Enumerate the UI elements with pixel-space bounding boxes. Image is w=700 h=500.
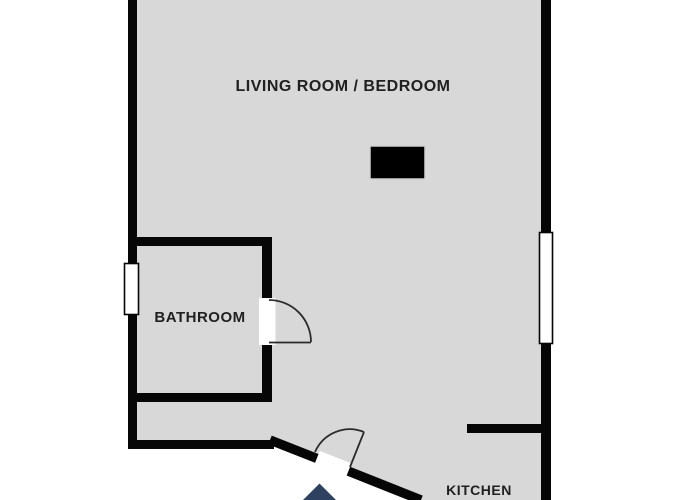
bathroom-window: [125, 264, 139, 315]
living-room-window: [540, 233, 553, 344]
north-arrow-icon: [303, 484, 336, 500]
floor-plan-image: LIVING ROOM / BEDROOM BATHROOM KITCHEN: [0, 0, 700, 500]
living-room-bedroom-label: LIVING ROOM / BEDROOM: [236, 78, 451, 95]
floor-plan-canvas: LIVING ROOM / BEDROOM BATHROOM KITCHEN: [0, 0, 700, 500]
kitchen-label: KITCHEN: [446, 482, 512, 498]
bathroom-label: BATHROOM: [154, 309, 245, 326]
furniture-block: [370, 146, 425, 179]
bathroom-door-opening: [259, 298, 276, 345]
